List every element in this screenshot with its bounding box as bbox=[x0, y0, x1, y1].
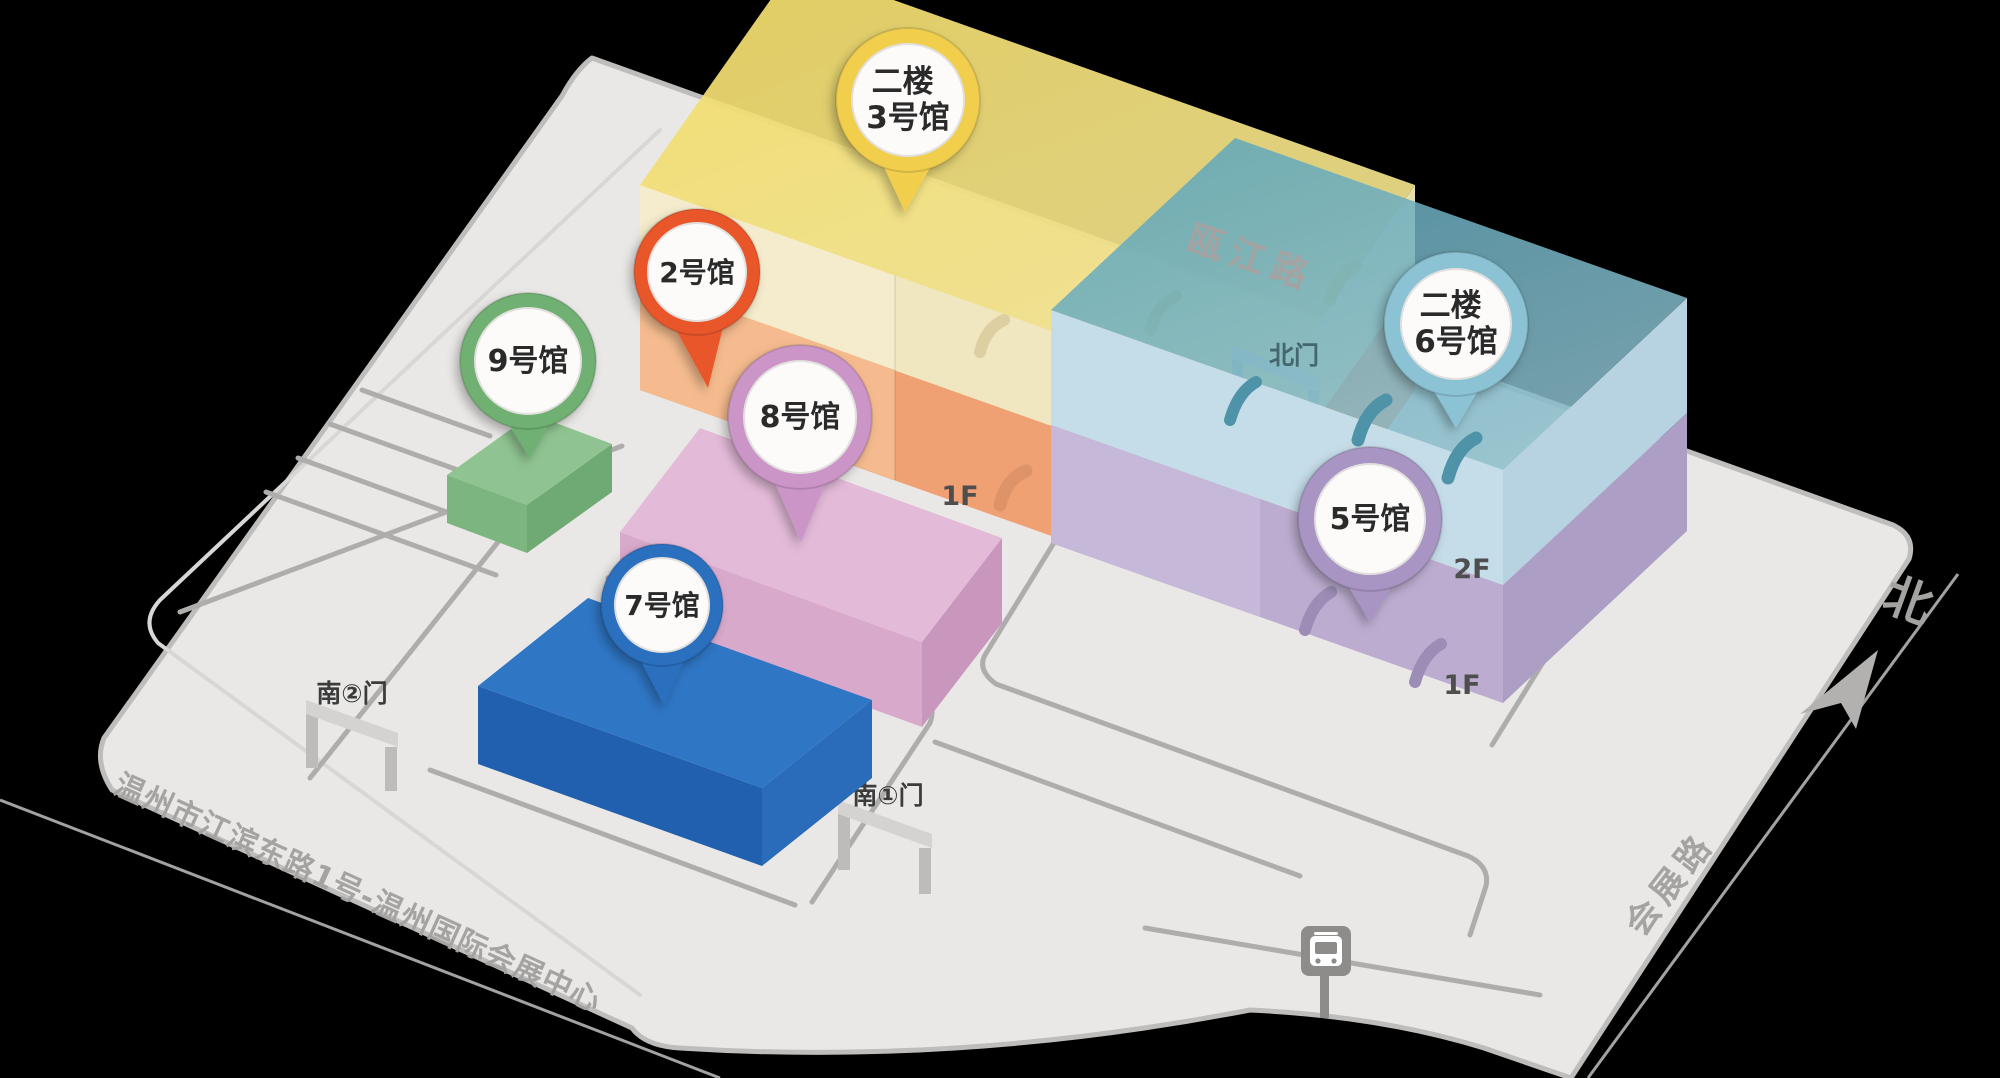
pin-hall-6-line2: 6号馆 bbox=[1414, 324, 1498, 360]
hall6-floor-label: 2F bbox=[1453, 554, 1490, 585]
venue-map: 南②门 南①门 1F bbox=[0, 0, 2000, 1078]
hall2-floor-label: 1F bbox=[941, 481, 978, 512]
gate-north-label: 北门 bbox=[1269, 341, 1319, 370]
pin-hall-7-label: 7号馆 bbox=[624, 589, 699, 622]
pin-hall-3-line1: 二楼 bbox=[872, 64, 934, 100]
gate-south-2-label: 南②门 bbox=[316, 679, 387, 708]
gate-post bbox=[306, 714, 318, 768]
gate-post bbox=[385, 747, 397, 791]
bus-stop-icon bbox=[1310, 932, 1342, 966]
gate-post bbox=[919, 848, 931, 894]
pin-hall-5-label: 5号馆 bbox=[1330, 502, 1411, 537]
gate-post bbox=[838, 814, 850, 870]
hall5-floor-label: 1F bbox=[1443, 670, 1480, 701]
venue-map-stage: 南②门 南①门 1F bbox=[0, 0, 2000, 1078]
pin-hall-2-label: 2号馆 bbox=[659, 256, 734, 289]
pin-hall-9-label: 9号馆 bbox=[488, 344, 569, 379]
pin-hall-3-line2: 3号馆 bbox=[866, 100, 950, 136]
pin-hall-6-line1: 二楼 bbox=[1420, 288, 1482, 324]
svg-text:二楼 6号馆: 二楼 6号馆 bbox=[1414, 288, 1498, 360]
gate-south-1-label: 南①门 bbox=[852, 781, 923, 810]
pin-hall-8-label: 8号馆 bbox=[760, 400, 841, 435]
svg-text:二楼 3号馆: 二楼 3号馆 bbox=[866, 64, 950, 136]
